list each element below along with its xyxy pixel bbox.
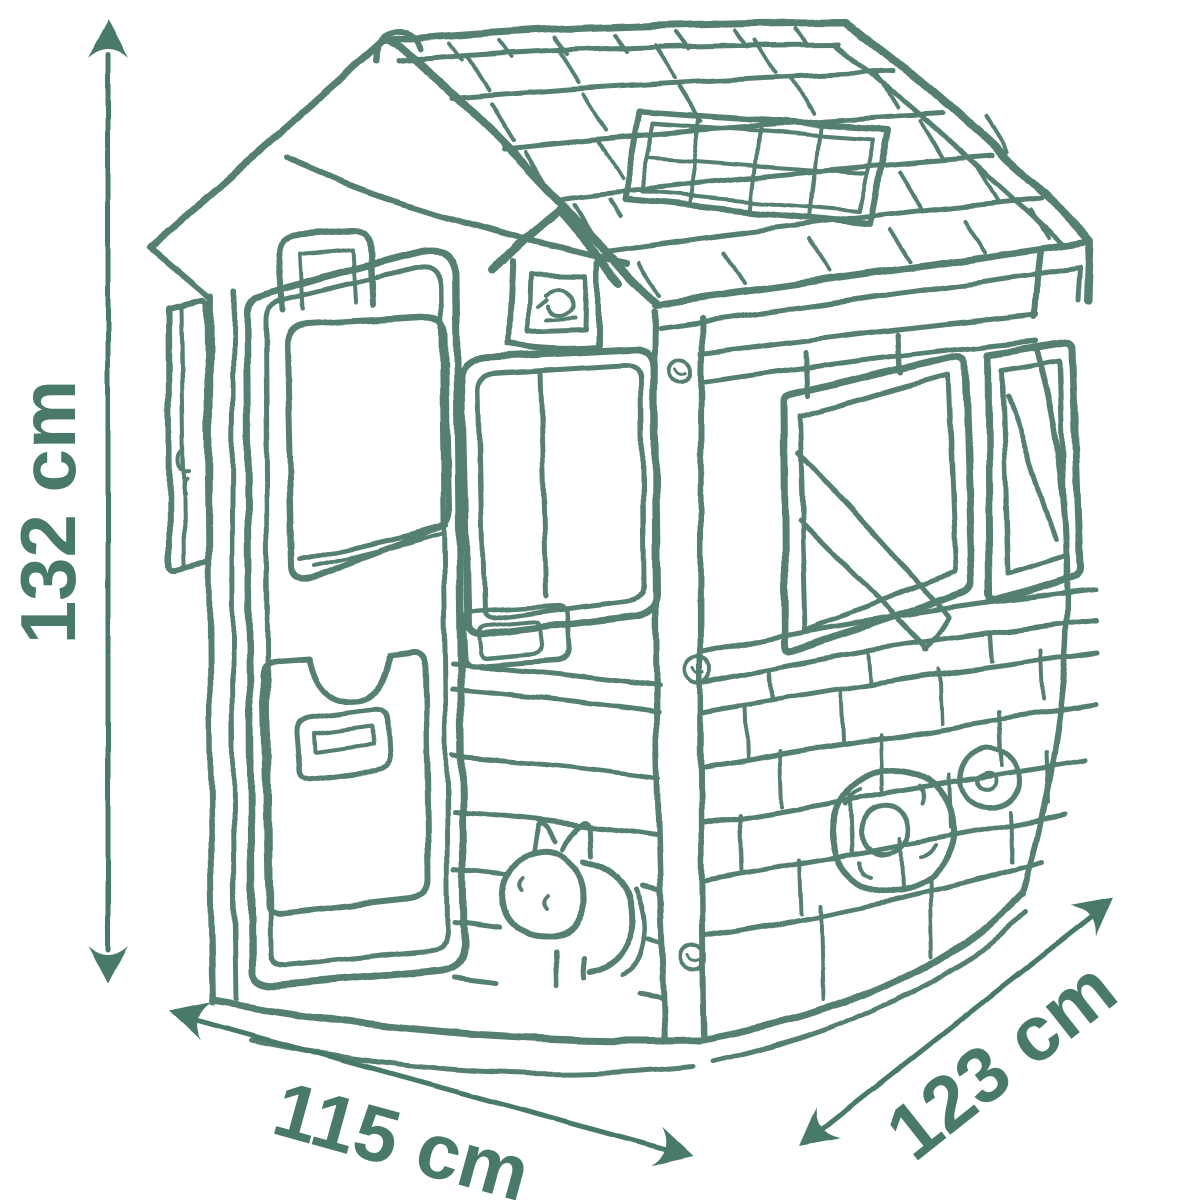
height-dimension-arrow xyxy=(88,20,128,984)
front-window xyxy=(462,350,656,666)
side-wall xyxy=(700,252,1098,1062)
door-panel xyxy=(263,651,428,912)
arrowhead-down-left xyxy=(787,1107,842,1162)
front-door xyxy=(247,230,464,986)
cat xyxy=(503,823,645,986)
door-slot xyxy=(297,710,389,779)
diagram-svg: 132 cm 115 cm 123 cm xyxy=(0,0,1200,1200)
width-dimension-label: 115 cm xyxy=(265,1064,539,1200)
arrowhead-right xyxy=(651,1127,698,1176)
arrowhead-left xyxy=(165,992,212,1041)
left-side-shutter xyxy=(168,300,208,570)
playhouse-sketch xyxy=(150,22,1098,1074)
dimension-diagram: 132 cm 115 cm 123 cm xyxy=(0,0,1200,1200)
height-dimension-label: 132 cm xyxy=(4,380,92,645)
screw xyxy=(669,361,691,383)
corner-post xyxy=(654,310,711,1040)
birdhouse xyxy=(492,210,620,349)
